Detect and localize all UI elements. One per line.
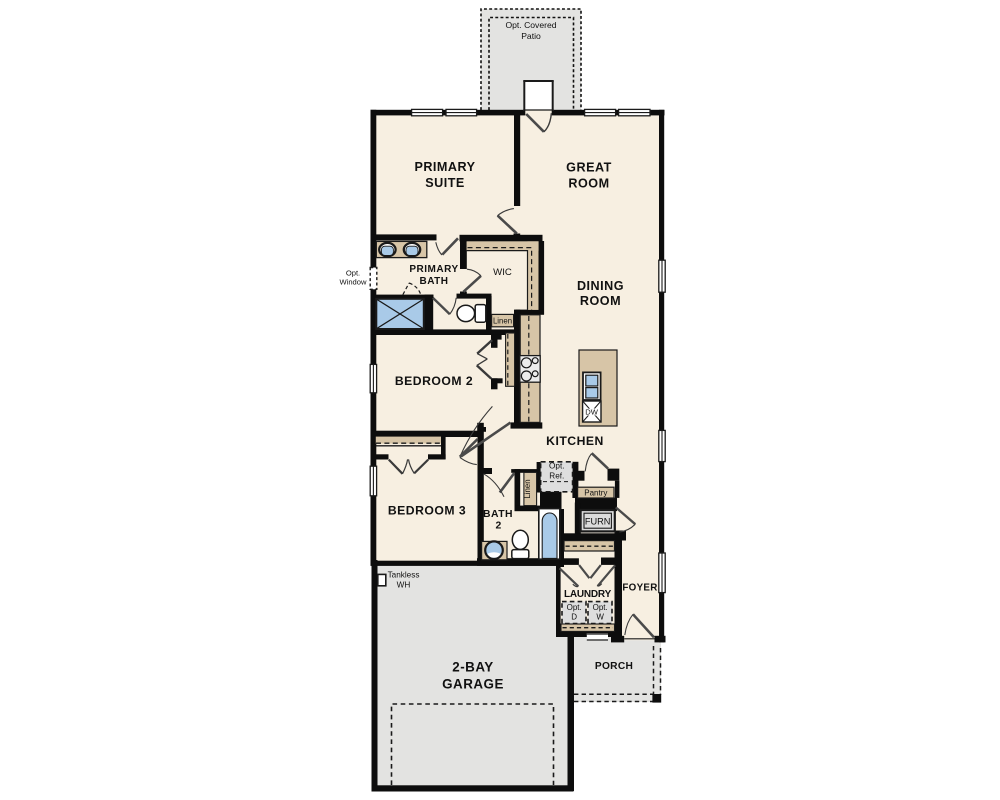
svg-text:ROOM: ROOM [580,294,621,308]
svg-text:FURN: FURN [585,517,611,527]
svg-text:LAUNDRY: LAUNDRY [564,589,612,600]
svg-text:FOYER: FOYER [622,582,657,593]
svg-text:WIC: WIC [493,267,512,278]
svg-text:BEDROOM 2: BEDROOM 2 [395,374,473,388]
svg-text:GREAT: GREAT [566,161,612,175]
svg-text:Linen: Linen [493,317,512,326]
svg-text:2-BAY: 2-BAY [452,660,493,675]
svg-text:Patio: Patio [521,31,541,41]
svg-text:Ref.: Ref. [549,471,564,480]
svg-text:Opt.: Opt. [593,603,608,612]
svg-text:ROOM: ROOM [568,177,609,191]
svg-text:DINING: DINING [577,279,624,293]
svg-text:BATH: BATH [419,276,448,287]
svg-text:W: W [596,613,604,622]
svg-text:Linen: Linen [523,479,532,498]
svg-text:GARAGE: GARAGE [442,677,504,692]
svg-text:SUITE: SUITE [425,176,465,190]
svg-text:Pantry: Pantry [584,488,607,497]
svg-text:PRIMARY: PRIMARY [414,160,475,174]
svg-text:Opt.: Opt. [549,461,564,470]
svg-text:D: D [571,613,577,622]
svg-text:BATH: BATH [483,509,513,520]
svg-text:PORCH: PORCH [595,661,633,672]
svg-text:WH: WH [397,580,411,589]
svg-text:2: 2 [495,521,501,532]
svg-text:Window: Window [339,278,367,287]
svg-text:PRIMARY: PRIMARY [409,264,458,275]
svg-text:Tankless: Tankless [388,571,420,580]
svg-text:Opt.: Opt. [346,268,360,277]
svg-text:DW: DW [585,408,598,417]
svg-text:BEDROOM 3: BEDROOM 3 [388,504,466,518]
svg-text:KITCHEN: KITCHEN [546,434,604,448]
svg-text:Opt. Covered: Opt. Covered [505,20,556,30]
svg-text:Opt.: Opt. [567,603,582,612]
